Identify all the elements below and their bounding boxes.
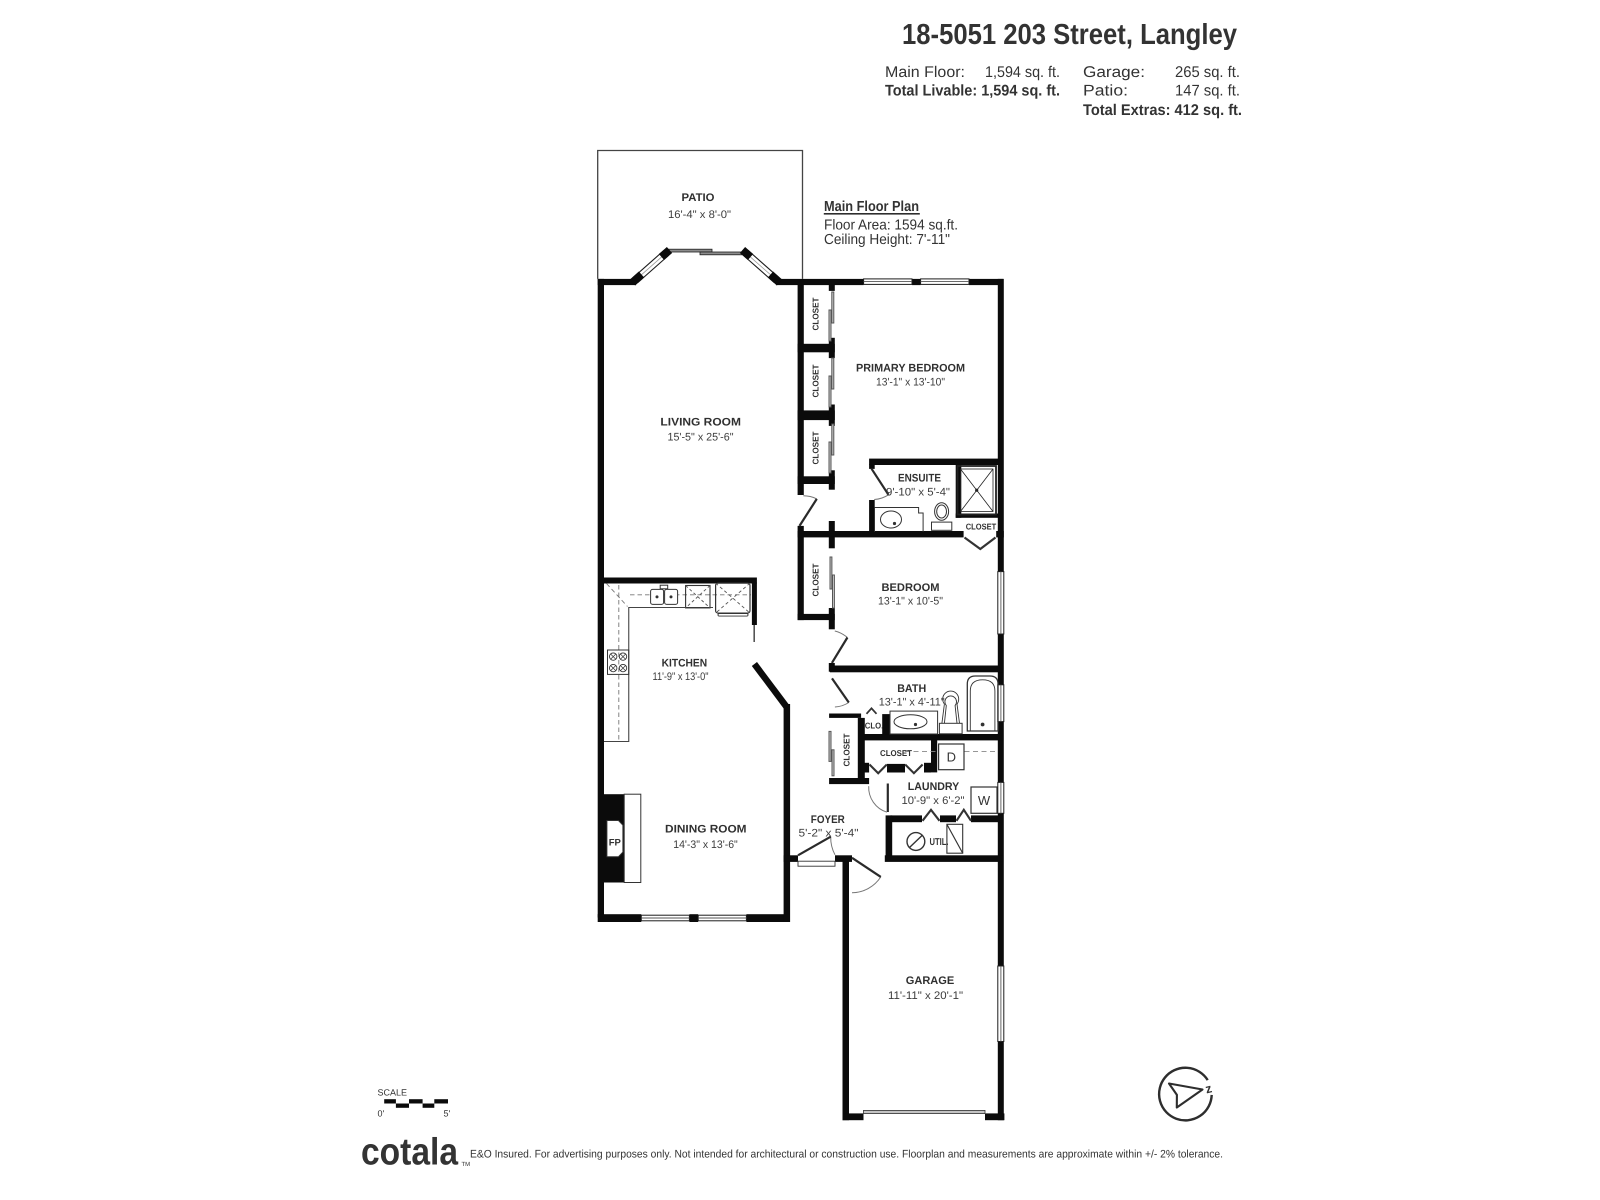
svg-text:14'-3" x 13'-6": 14'-3" x 13'-6" [673, 839, 738, 851]
svg-text:16'-4" x 8'-0": 16'-4" x 8'-0" [668, 209, 731, 221]
svg-text:CLOSET: CLOSET [811, 431, 821, 465]
svg-text:11'-11" x 20'-1": 11'-11" x 20'-1" [888, 990, 963, 1002]
svg-text:13'-1" x 10'-5": 13'-1" x 10'-5" [878, 596, 943, 608]
svg-text:TM: TM [462, 1161, 471, 1168]
svg-text:DINING ROOM: DINING ROOM [665, 824, 747, 836]
svg-text:0': 0' [378, 1109, 385, 1119]
svg-text:D: D [947, 750, 956, 765]
svg-text:10'-9" x 6'-2": 10'-9" x 6'-2" [902, 795, 965, 807]
svg-text:LIVING ROOM: LIVING ROOM [660, 417, 741, 429]
svg-text:5': 5' [444, 1109, 451, 1119]
svg-text:9'-10" x 5'-4": 9'-10" x 5'-4" [886, 487, 950, 499]
svg-text:5'-2" x 5'-4": 5'-2" x 5'-4" [799, 828, 859, 840]
svg-text:CLO.: CLO. [865, 721, 884, 731]
svg-text:Total Extras: 412 sq. ft.: Total Extras: 412 sq. ft. [1083, 102, 1242, 119]
svg-text:FP: FP [609, 838, 622, 849]
svg-text:Patio:: Patio: [1083, 83, 1128, 100]
svg-text:Total Livable: 1,594 sq. ft.: Total Livable: 1,594 sq. ft. [885, 83, 1060, 100]
svg-text:Main Floor:: Main Floor: [885, 64, 965, 81]
svg-text:PRIMARY BEDROOM: PRIMARY BEDROOM [856, 363, 965, 375]
svg-text:FOYER: FOYER [811, 814, 845, 826]
svg-text:CLOSET: CLOSET [880, 748, 913, 758]
svg-text:13'-1" x 4'-11": 13'-1" x 4'-11" [879, 697, 945, 709]
svg-text:CLOSET: CLOSET [842, 733, 852, 767]
svg-text:147 sq. ft.: 147 sq. ft. [1175, 83, 1240, 100]
svg-text:PATIO: PATIO [682, 192, 715, 204]
svg-text:BATH: BATH [897, 683, 926, 695]
svg-text:265 sq. ft.: 265 sq. ft. [1175, 64, 1240, 81]
svg-text:13'-1" x 13'-10": 13'-1" x 13'-10" [876, 377, 945, 389]
svg-text:11'-9" x 13'-0": 11'-9" x 13'-0" [653, 671, 709, 683]
svg-text:KITCHEN: KITCHEN [662, 658, 708, 670]
svg-text:CLOSET: CLOSET [811, 297, 821, 331]
svg-text:1,594 sq. ft.: 1,594 sq. ft. [985, 64, 1060, 81]
svg-text:E&O Insured. For advertising p: E&O Insured. For advertising purposes on… [470, 1149, 1223, 1161]
svg-text:W: W [978, 793, 991, 808]
svg-text:Ceiling Height: 7'-11": Ceiling Height: 7'-11" [824, 232, 950, 248]
svg-text:ENSUITE: ENSUITE [898, 473, 941, 485]
svg-text:18-5051 203 Street, Langley: 18-5051 203 Street, Langley [902, 19, 1237, 51]
svg-text:Garage:: Garage: [1083, 64, 1145, 81]
svg-text:LAUNDRY: LAUNDRY [908, 781, 960, 793]
svg-text:cotala: cotala [361, 1132, 459, 1174]
svg-text:UTIL.: UTIL. [930, 837, 949, 848]
svg-text:15'-5" x 25'-6": 15'-5" x 25'-6" [668, 432, 734, 444]
svg-text:CLOSET: CLOSET [966, 522, 997, 532]
svg-text:SCALE: SCALE [378, 1088, 408, 1098]
svg-text:CLOSET: CLOSET [811, 563, 821, 597]
svg-text:BEDROOM: BEDROOM [882, 582, 940, 594]
svg-text:GARAGE: GARAGE [906, 975, 955, 987]
svg-text:CLOSET: CLOSET [811, 364, 821, 398]
svg-text:Main Floor Plan: Main Floor Plan [824, 199, 919, 215]
